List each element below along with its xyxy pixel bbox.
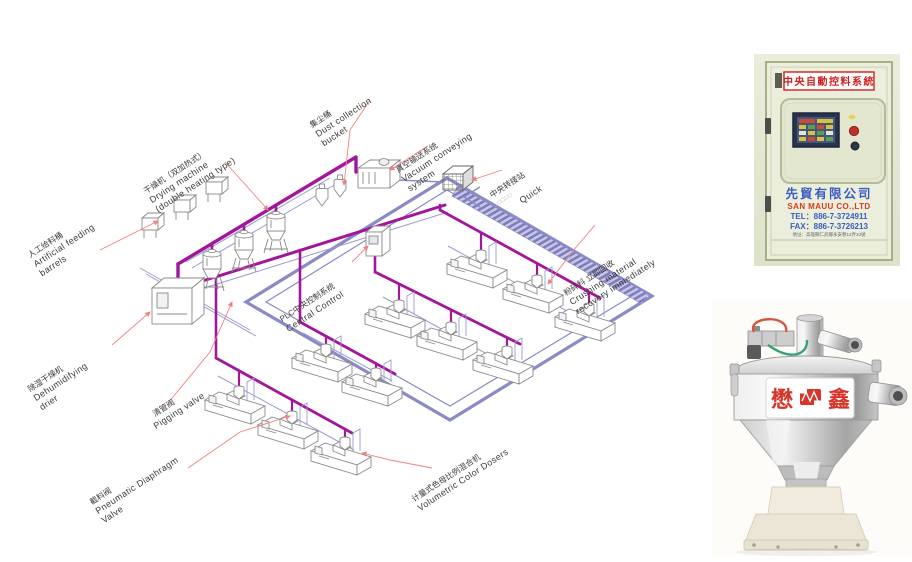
company-address: 地址：高雄縣仁武鄉永安巷12弄33號 — [792, 231, 866, 238]
control-cabinet-photo: 中央自動控料系統 先貿有限公司 SAN MAUU CO.,LTD TEL：886… — [754, 54, 900, 266]
hinge-top — [765, 118, 771, 134]
svg-text:计量式色母比例混合机 Volumetric Colo: 计量式色母比例混合机 Volumetric Color Dosers — [407, 433, 510, 513]
svg-text:粉碎料 立即回收 Crushing material: 粉碎料 立即回收 Crushing material recovery imme… — [559, 234, 657, 316]
plc-control-unit — [366, 226, 390, 256]
indicator-lamp — [849, 115, 856, 119]
company-name-zh: 先貿有限公司 — [785, 186, 872, 201]
label-diaphragm-valve: 截料阀 Pneumatic Diaphragm Valve — [85, 439, 190, 525]
company-fax: FAX：886-7-3726213 — [790, 222, 868, 231]
company-name-en: SAN MAUU CO.,LTD — [787, 202, 870, 211]
svg-text:集尘桶 Dust collection bu: 集尘桶 Dust collection bucket — [305, 80, 383, 149]
brand-char-right: 鑫 — [828, 387, 850, 412]
label-dust-collection: 集尘桶 Dust collection bucket — [305, 80, 383, 149]
label-plc-control: PLC中央控制系统 Central Control — [275, 274, 347, 334]
transfer-station-unit — [443, 166, 473, 190]
touch-screen[interactable] — [793, 113, 839, 147]
clamp-right — [872, 360, 881, 372]
label-color-doser: 计量式色母比例混合机 Volumetric Color Dosers — [407, 433, 510, 513]
label-artificial-feeding: 人工给料桶 Artificial feeding barrels — [23, 206, 106, 278]
svg-text:人工给料桶 Artificial feeding: 人工给料桶 Artificial feeding barrels — [23, 206, 106, 278]
svg-text:PLC中央控制系统 Central Control: PLC中央控制系统 Central Control — [275, 274, 347, 334]
label-dehumidifying-drier: 除湿干燥机 Dehumidifying drier — [23, 345, 99, 412]
power-button[interactable] — [851, 142, 859, 150]
red-button[interactable] — [849, 126, 858, 135]
vacuum-station-unit — [358, 159, 400, 188]
base-neck — [768, 487, 844, 514]
company-tel: TEL：886-7-3724911 — [791, 212, 868, 221]
brand-logo-icon — [800, 389, 821, 405]
central-conveying-diagram: 人工给料桶 Artificial feeding barrels 干燥机（双加热… — [0, 0, 912, 562]
cabinet-nameplate-text: 中央自動控料系統 — [783, 75, 875, 88]
svg-text:除湿干燥机 Dehumidifying dr: 除湿干燥机 Dehumidifying drier — [23, 345, 99, 412]
svg-text:截料阀 Pneumatic Diaphragm: 截料阀 Pneumatic Diaphragm Valve — [85, 439, 190, 525]
dehumidifying-drier-unit — [152, 278, 204, 324]
hopper-loader-photo: 懋 鑫 — [712, 300, 912, 556]
label-pigging-valve: 清管阀 Pigging valve — [143, 377, 206, 431]
brand-char-left: 懋 — [771, 387, 793, 412]
base-skirt — [746, 514, 866, 540]
hinge-bottom — [765, 196, 771, 212]
brochure-page: 人工给料桶 Artificial feeding barrels 干燥机（双加热… — [0, 0, 912, 562]
label-crushing-recovery: 粉碎料 立即回收 Crushing material recovery imme… — [559, 234, 657, 316]
vent — [775, 73, 782, 88]
svg-text:清管阀 Pigging valve: 清管阀 Pigging valve — [143, 377, 206, 431]
